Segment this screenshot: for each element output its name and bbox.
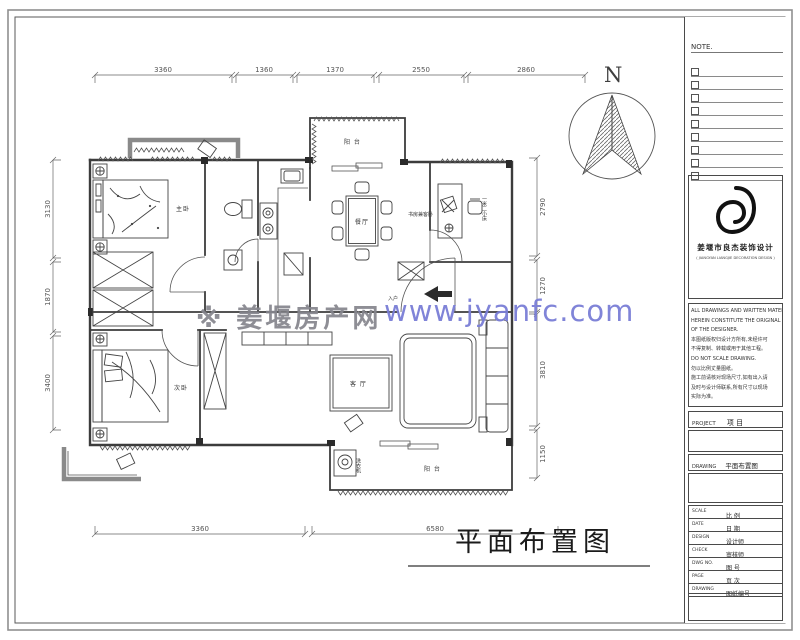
note-line: OF THE DESIGNER. (691, 326, 780, 336)
checkbox-icon (691, 81, 699, 89)
dim-left-2: 1870 (44, 288, 52, 306)
field-row-design: DESIGN设计师 (689, 532, 782, 545)
note-row (691, 76, 783, 90)
checkbox-icon (691, 68, 699, 76)
note-row (691, 102, 783, 116)
label-bedroom-second: 次卧 (174, 384, 188, 392)
drawing-value-box (688, 473, 783, 503)
field-row-dwgno: DWG NO.图 号 (689, 558, 782, 571)
note-row (691, 128, 783, 142)
checkbox-icon (691, 120, 699, 128)
label-balcony-top: 阳 台 (344, 138, 361, 146)
fields-table: SCALE比 例 DATE日 期 DESIGN设计师 CHECK审核师 DWG … (688, 505, 783, 597)
checkbox-icon (691, 107, 699, 115)
field-label-en: DATE (692, 519, 726, 531)
field-row-check: CHECK审核师 (689, 545, 782, 558)
label-washer: 洗衣机 (355, 457, 361, 474)
dim-right-2: 1270 (539, 277, 547, 295)
project-label: PROJECT (692, 421, 716, 427)
dim-top-2: 1360 (255, 66, 273, 74)
note-section-title: NOTE. (691, 43, 783, 53)
dim-right-3: 3810 (539, 361, 547, 379)
note-row (691, 154, 783, 168)
note-line: 不得复制、转载或用于其他工程。 (691, 345, 780, 355)
field-label-en: DESIGN (692, 532, 726, 544)
note-line: 施工前请核对现场尺寸,如有出入请 (691, 374, 780, 384)
note-row (691, 141, 783, 155)
checkbox-icon (691, 146, 699, 154)
project-row: PROJECT 项 目 (688, 411, 783, 428)
field-label-en: SCALE (692, 506, 726, 518)
note-row (691, 63, 783, 77)
project-label-cn: 项 目 (727, 419, 743, 427)
dim-top-1: 3360 (154, 66, 172, 74)
dimension-top: 3360 1360 1370 2550 2860 (92, 66, 588, 83)
note-line: DO NOT SCALE DRAWING. (691, 355, 780, 365)
field-row-date: DATE日 期 (689, 519, 782, 532)
note-line: 勿以比例丈量图纸。 (691, 365, 780, 375)
drawing-title-text: 平面布置图 (455, 527, 615, 557)
dim-bottom-1: 3360 (191, 525, 209, 533)
dim-left-1: 3130 (44, 200, 52, 218)
north-arrow: N (569, 63, 655, 179)
field-row-scale: SCALE比 例 (689, 506, 782, 519)
label-study-note: 一米二小床 (481, 196, 487, 222)
bathroom-fixtures (224, 200, 252, 270)
watermark-site-name: ※ 姜堰房产网 (196, 298, 381, 335)
label-dining: 餐厅 (355, 218, 369, 226)
field-label-en: PAGE (692, 571, 726, 583)
title-block-panel: NOTE. 姜堰市良杰装饰设计 ( JIANGYAN LIANGJIE DECO… (684, 17, 786, 623)
drawing-title: 平面布置图 (408, 527, 650, 566)
note-line: 及时与设计师联系,所有尺寸以现场 (691, 384, 780, 394)
company-name: 姜堰市良杰装饰设计 (689, 242, 782, 253)
drawing-label: DRAWING (692, 464, 716, 470)
project-value-box (688, 430, 783, 452)
company-logo-box: 姜堰市良杰装饰设计 ( JIANGYAN LIANGJIE DECORATION… (688, 175, 783, 299)
floor-plan-page: 阳 台 餐厅 书房兼客卧 一米二小床 客 厅 主卧 次卧 阳 台 入户 洗衣机 … (0, 0, 800, 640)
kitchen-fixtures (260, 169, 308, 312)
dim-right-1: 2790 (539, 198, 547, 216)
label-living: 客 厅 (350, 380, 367, 388)
dim-right-4: 1150 (539, 445, 547, 463)
drawing-value: 平面布置图 (725, 462, 758, 470)
note-row (691, 115, 783, 129)
note-line: HEREIN CONSTITUTE THE ORIGINAL WORK (691, 317, 780, 327)
living-room-furniture (204, 320, 508, 432)
watermark-url: www.jyanfc.com (384, 294, 634, 328)
note-line: 本图纸版权归设计方所有,未经许可 (691, 336, 780, 346)
bottom-empty-box (688, 593, 783, 621)
note-row (691, 89, 783, 103)
company-logo-icon (689, 184, 782, 240)
field-label-en: CHECK (692, 545, 726, 557)
field-row-page: PAGE页 次 (689, 571, 782, 584)
note-line: ALL DRAWINGS AND WRITTEN MATERIAL (691, 307, 780, 317)
study-furniture (438, 184, 482, 238)
label-balcony-bottom: 阳 台 (424, 465, 441, 473)
bottom-balcony-fixtures (334, 450, 356, 476)
dimension-left: 3130 1870 3400 (44, 157, 61, 433)
north-label: N (604, 63, 622, 87)
dim-top-4: 2550 (412, 66, 430, 74)
dim-top-3: 1370 (326, 66, 344, 74)
checkbox-icon (691, 94, 699, 102)
field-label-en: DWG NO. (692, 558, 726, 570)
checkbox-icon (691, 159, 699, 167)
label-study: 书房兼客卧 (408, 211, 433, 218)
company-name-en: ( JIANGYAN LIANGJIE DECORATION DESIGN ) (694, 255, 778, 260)
dim-bottom-2: 6580 (426, 525, 444, 533)
label-bedroom-master: 主卧 (176, 205, 190, 213)
notes-box: ALL DRAWINGS AND WRITTEN MATERIAL HEREIN… (688, 303, 783, 407)
note-line: 实际为准。 (691, 393, 780, 403)
dim-left-3: 3400 (44, 374, 52, 392)
checkbox-icon (691, 133, 699, 141)
drawing-row: DRAWING 平面布置图 (688, 454, 783, 471)
dim-top-5: 2860 (517, 66, 535, 74)
